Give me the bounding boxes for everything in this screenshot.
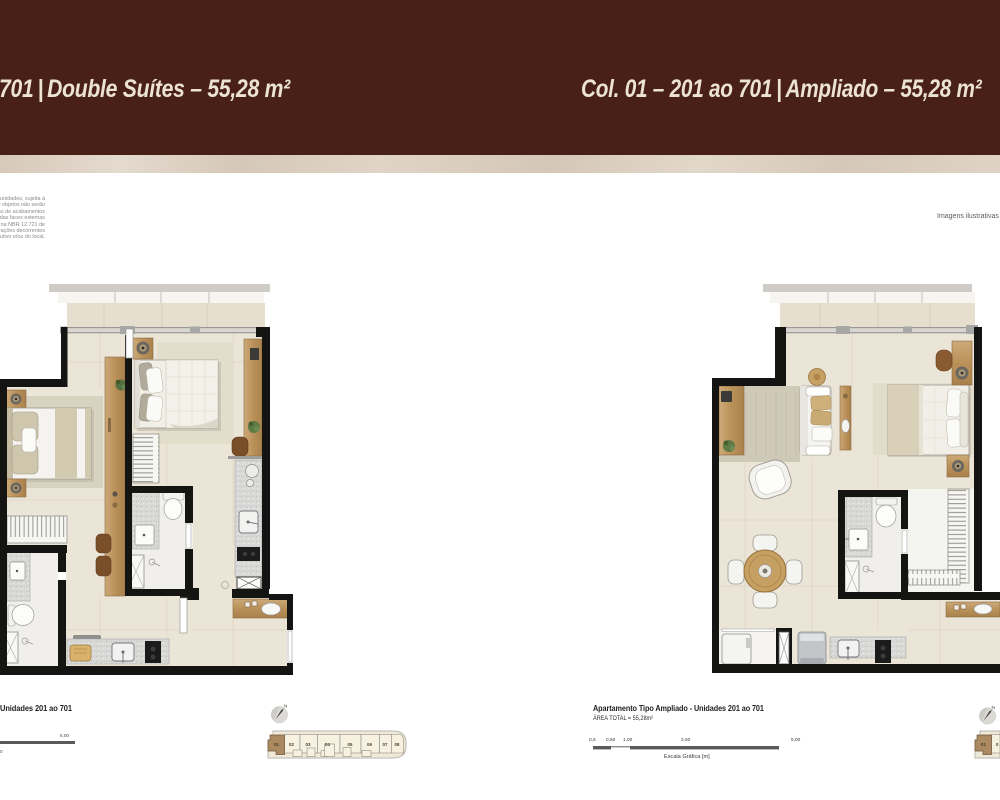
svg-text:2,50: 2,50 — [681, 737, 691, 743]
svg-text:N: N — [992, 705, 995, 710]
svg-text:0,5: 0,5 — [589, 737, 596, 743]
svg-text:01: 01 — [981, 742, 986, 747]
svg-text:02: 02 — [289, 742, 294, 747]
svg-text:01: 01 — [274, 742, 279, 747]
svg-text:N: N — [284, 704, 287, 709]
svg-text:08: 08 — [395, 742, 400, 747]
svg-text:Escala Gráfica [m]: Escala Gráfica [m] — [664, 754, 710, 760]
svg-text:1,00: 1,00 — [623, 737, 633, 743]
svg-text:03: 03 — [306, 742, 311, 747]
svg-text:06: 06 — [367, 742, 372, 747]
svg-text:07: 07 — [383, 742, 388, 747]
svg-text:05: 05 — [348, 742, 353, 747]
svg-text:0,50: 0,50 — [606, 737, 616, 743]
svg-text:04: 04 — [325, 742, 330, 747]
svg-text:5,00: 5,00 — [791, 737, 801, 743]
